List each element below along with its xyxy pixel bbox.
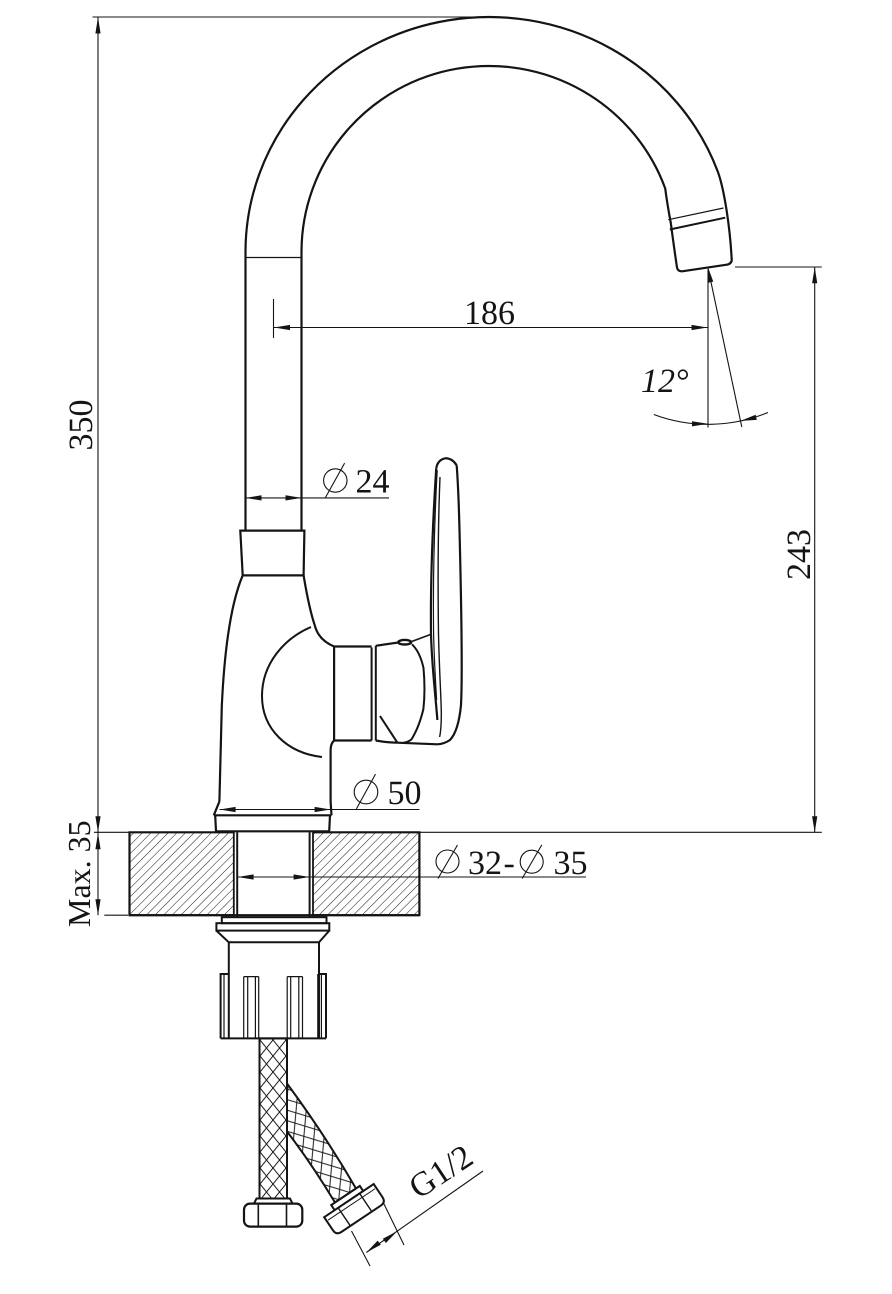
svg-text:-: -: [504, 845, 515, 882]
svg-text:50: 50: [388, 775, 422, 812]
svg-text:35: 35: [554, 845, 588, 882]
svg-text:12°: 12°: [641, 363, 689, 400]
svg-text:243: 243: [781, 529, 818, 580]
svg-text:32: 32: [468, 845, 502, 882]
svg-text:186: 186: [464, 295, 515, 332]
svg-text:350: 350: [63, 400, 100, 451]
svg-text:Max. 35: Max. 35: [61, 820, 97, 927]
svg-text:24: 24: [356, 464, 390, 501]
